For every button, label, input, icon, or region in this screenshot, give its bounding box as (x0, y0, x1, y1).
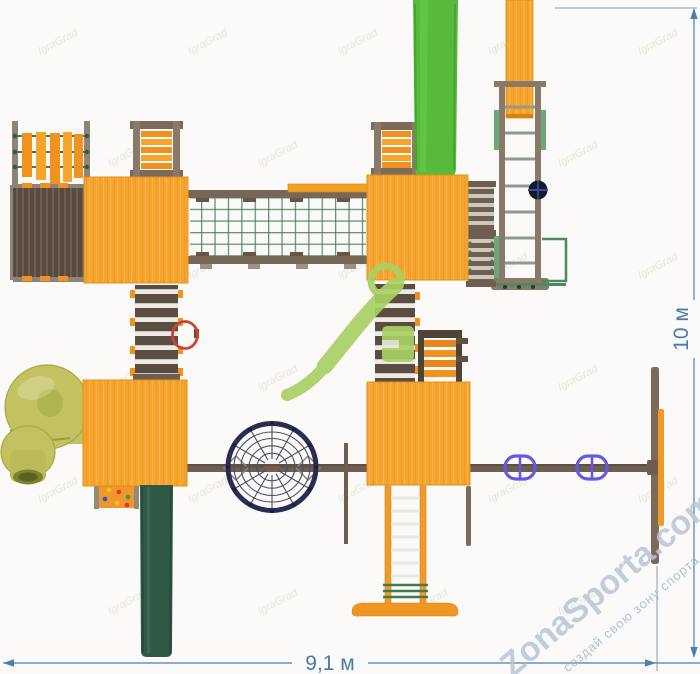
balance-beam (288, 184, 368, 192)
product-plan-image: IgraGradIgraGradIgraGradIgraGradIgraGrad… (0, 0, 700, 674)
plank-walkway (466, 181, 496, 287)
green-slide (413, 0, 458, 178)
support-post-right (466, 486, 471, 546)
dimension-width-label: 9,1 м (305, 652, 354, 674)
stair-steps-left (130, 285, 183, 380)
wooden-deck (10, 183, 84, 282)
tower-roof-bottom-right (367, 382, 470, 485)
support-post-left (344, 443, 348, 544)
dimension-height-label: 10 м (670, 307, 693, 351)
dark-green-slide (140, 485, 173, 657)
orange-step-ramp (418, 330, 468, 382)
net-crossing-bridge (187, 190, 368, 269)
tower-roof-top-left (84, 177, 188, 283)
tower-roof-bottom-left (83, 380, 187, 486)
tall-orange-beam (506, 0, 533, 118)
